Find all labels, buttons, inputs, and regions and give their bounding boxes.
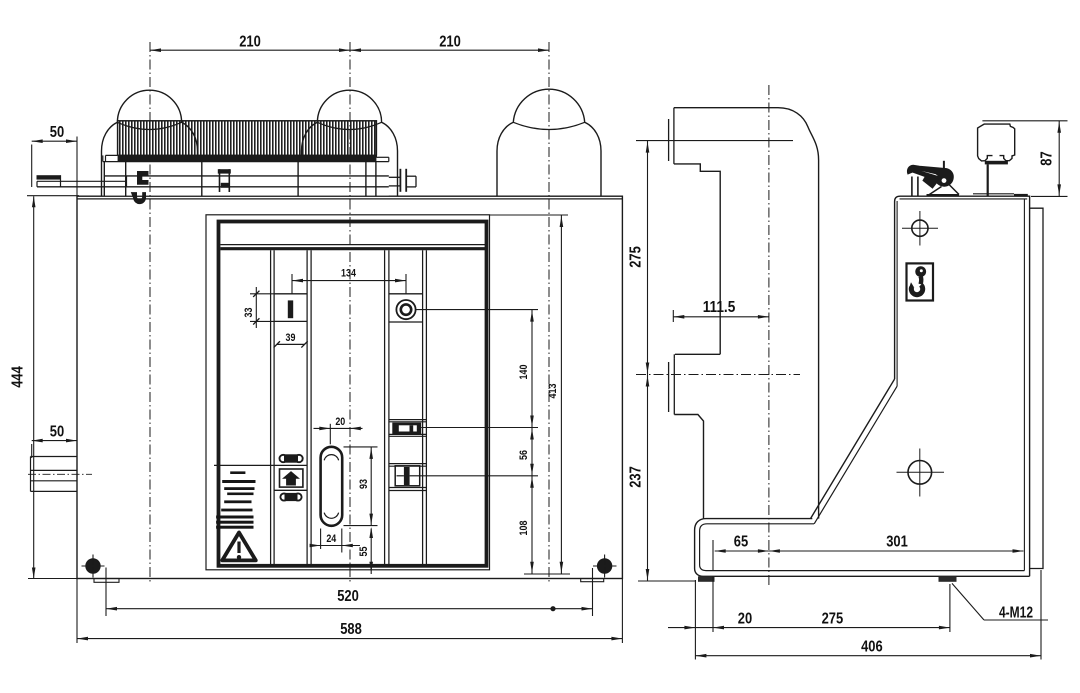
svg-text:588: 588 <box>340 621 362 638</box>
svg-text:33: 33 <box>243 308 255 318</box>
svg-text:140: 140 <box>518 365 530 380</box>
svg-text:406: 406 <box>861 639 883 656</box>
svg-text:301: 301 <box>886 534 908 551</box>
svg-text:210: 210 <box>439 34 461 51</box>
svg-text:50: 50 <box>50 424 64 441</box>
svg-text:111.5: 111.5 <box>703 299 736 316</box>
svg-text:87: 87 <box>1039 151 1056 165</box>
svg-text:50: 50 <box>50 124 64 141</box>
svg-text:210: 210 <box>239 34 261 51</box>
svg-text:134: 134 <box>341 268 356 280</box>
svg-text:275: 275 <box>628 246 645 268</box>
svg-text:20: 20 <box>738 611 752 628</box>
svg-text:4-M12: 4-M12 <box>999 605 1033 622</box>
svg-text:24: 24 <box>326 533 336 545</box>
svg-text:237: 237 <box>628 466 645 488</box>
svg-text:520: 520 <box>337 588 359 605</box>
svg-text:275: 275 <box>822 611 844 628</box>
svg-text:39: 39 <box>286 332 296 344</box>
svg-text:413: 413 <box>547 384 559 399</box>
svg-text:108: 108 <box>518 521 530 536</box>
svg-text:20: 20 <box>335 416 345 428</box>
svg-text:56: 56 <box>518 450 530 460</box>
svg-text:444: 444 <box>10 366 27 388</box>
svg-text:93: 93 <box>358 479 370 489</box>
svg-text:65: 65 <box>734 534 748 551</box>
svg-text:55: 55 <box>358 547 370 557</box>
